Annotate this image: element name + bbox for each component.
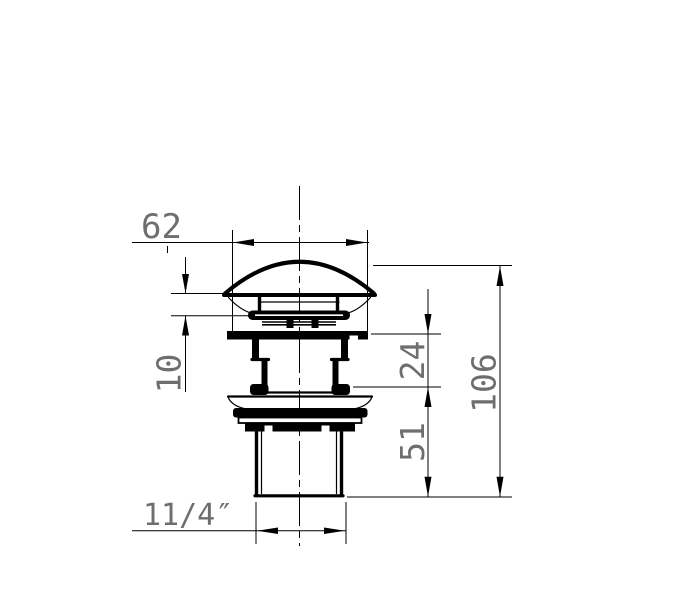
technical-drawing-canvas: 62 10 24 51 106 11/4″: [0, 0, 676, 591]
arrowhead-down: [425, 314, 432, 334]
arrowhead-left: [257, 528, 278, 535]
cap-nut-collar: [248, 311, 350, 329]
arrowhead-right: [346, 239, 367, 246]
dim-cap-lift: 10: [150, 257, 251, 393]
dim-thread-size: 11/4″: [132, 498, 346, 544]
arrowhead-down: [497, 477, 504, 497]
dim-cap-width-label: 62: [141, 207, 182, 247]
dim-thread-size-label: 11/4″: [143, 498, 233, 533]
lock-ring: [239, 418, 362, 424]
drain-valve-drawing: 62 10 24 51 106 11/4″: [0, 0, 676, 591]
dim-overall-height-label: 106: [465, 353, 504, 413]
arrowhead-up: [425, 387, 432, 407]
slotted-nut: [245, 423, 355, 432]
arrowhead-down: [182, 274, 189, 294]
dim-cap-lift-label: 10: [150, 354, 189, 394]
arrowhead-up: [182, 316, 189, 336]
dim-body-depth-label: 24: [393, 341, 432, 381]
dim-thread-length: 51: [347, 422, 512, 497]
cap-neck: [260, 296, 338, 311]
mounting-flange: [227, 331, 368, 340]
arrowhead-up: [497, 266, 504, 286]
dim-thread-length-label: 51: [393, 422, 432, 462]
arrowhead-down: [425, 477, 432, 497]
arrowhead-right: [324, 528, 345, 535]
dim-body-depth: 24: [353, 289, 441, 497]
arrowhead-left: [233, 239, 254, 246]
